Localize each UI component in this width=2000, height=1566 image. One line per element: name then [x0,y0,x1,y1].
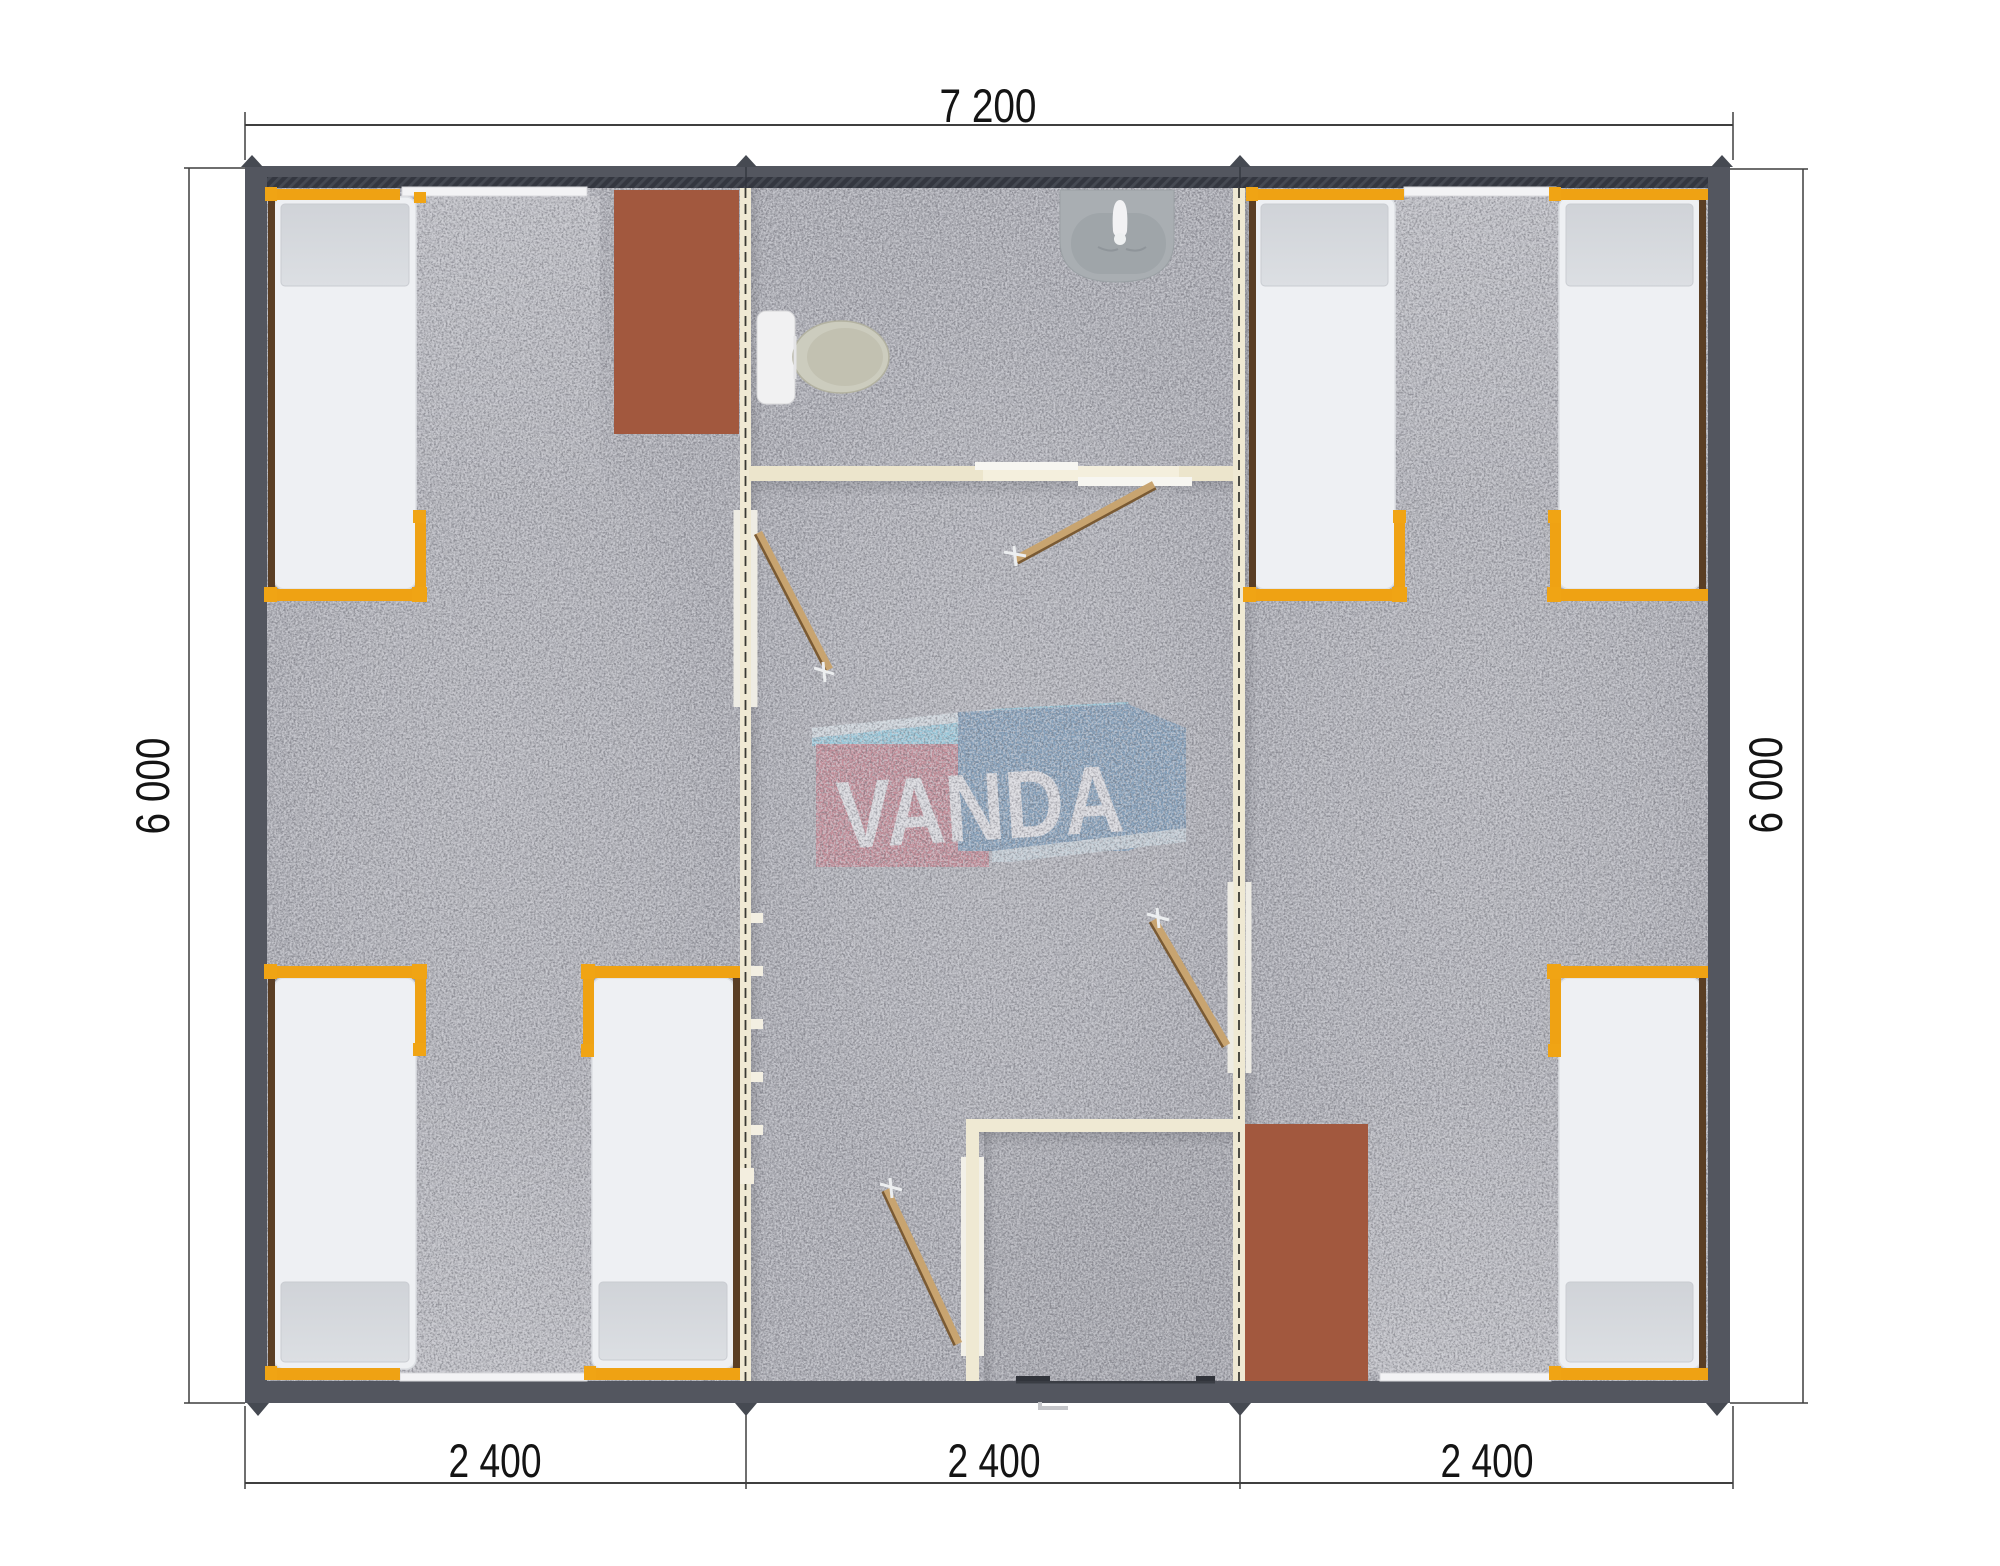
svg-text:2 400: 2 400 [948,1434,1041,1487]
svg-text:6 000: 6 000 [126,738,179,835]
svg-text:2 400: 2 400 [449,1434,542,1487]
svg-text:7 200: 7 200 [940,79,1037,132]
svg-text:2 400: 2 400 [1441,1434,1534,1487]
svg-text:6 000: 6 000 [1739,737,1792,834]
